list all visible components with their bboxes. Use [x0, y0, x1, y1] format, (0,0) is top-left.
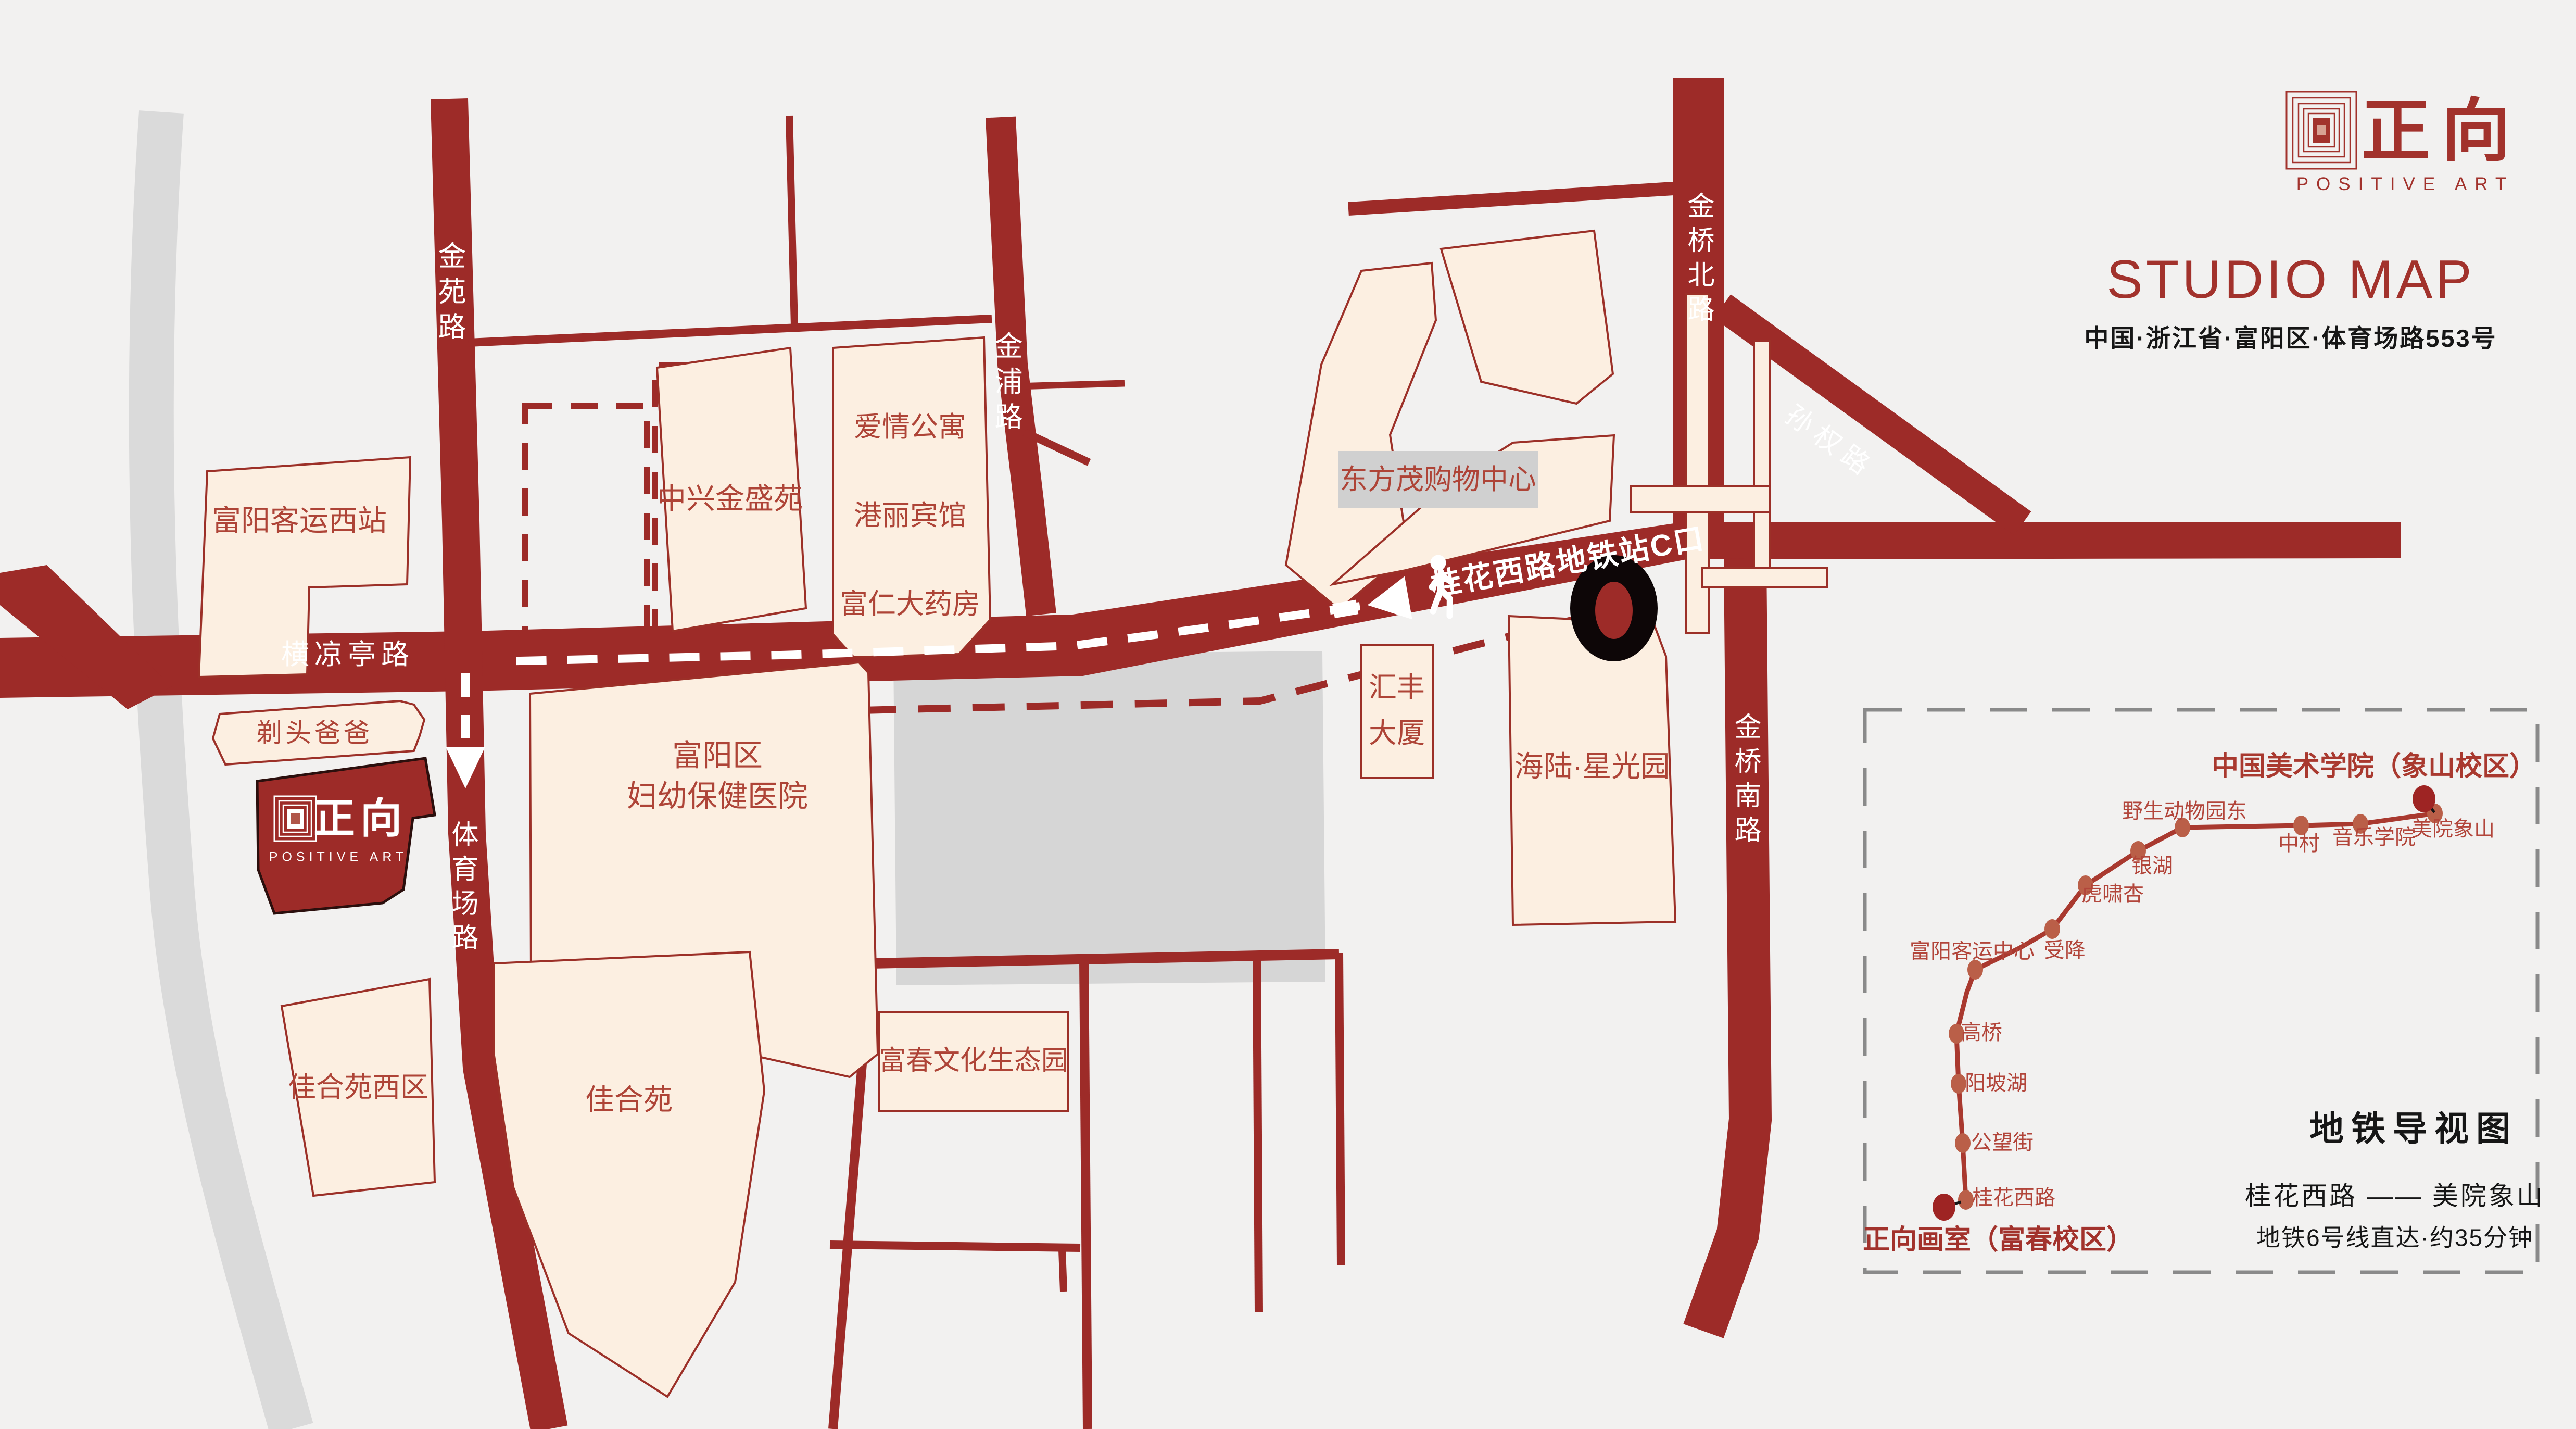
road-jinqiao-south [1703, 558, 1750, 1331]
map-canvas [0, 0, 2576, 1429]
metro-station-yinhu: 银湖 [2131, 854, 2173, 878]
metro-station-yesheng-dongwuyuan: 野生动物园东 [2122, 799, 2247, 823]
building-dongfangmao-north [1441, 231, 1613, 404]
road-label-jinyuan: 金苑路 [435, 241, 463, 347]
label-gangli-hotel: 港丽宾馆 [854, 499, 966, 532]
metro-station-fuyang-keyun: 富阳客运中心 [1910, 939, 2035, 963]
metro-studio-terminal: 正向画室（富春校区） [1863, 1225, 2133, 1256]
label-haircut-dad: 剃头爸爸 [256, 718, 373, 748]
road-park-south [830, 1245, 1080, 1248]
overpass-upper-bar [1631, 486, 1770, 512]
dashed-parcel-1 [525, 406, 647, 636]
overpass-lower-bar [1702, 568, 1827, 587]
road-mid-vertical-3 [1339, 953, 1341, 1265]
label-hsbc-line2: 大厦 [1369, 717, 1425, 749]
metro-station-guihuaxilu: 桂花西路 [1972, 1186, 2055, 1210]
label-bus-station-west: 富阳客运西站 [212, 504, 387, 537]
label-hsbc-line1: 汇丰 [1369, 671, 1425, 704]
label-hailu: 海陆·星光园 [1514, 750, 1670, 783]
road-mid-vertical-2 [1257, 958, 1259, 1312]
label-hospital-line1: 富阳区 [672, 739, 763, 774]
brand-logo-en: POSITIVE ART [2296, 174, 2515, 195]
road-jinpu-cross [1016, 383, 1125, 386]
brand-logo-icon [2287, 92, 2356, 169]
metro-campus-terminal: 中国美术学院（象山校区） [2212, 751, 2536, 783]
metro-station-meiyuan-xiangshan: 美院象山 [2411, 817, 2495, 841]
road-label-tiyuchang: 体育场路 [449, 820, 476, 958]
label-jiaheyuan: 佳合苑 [585, 1083, 673, 1117]
metro-station-zhongcun: 中村 [2278, 832, 2320, 856]
studio-marker-cn: 正向 [313, 795, 407, 843]
page-title: STUDIO MAP [2106, 249, 2474, 311]
terminal-dot-studio [1933, 1194, 1955, 1221]
road-park-stub [1062, 1250, 1064, 1292]
metro-panel-title: 地铁导视图 [2309, 1109, 2518, 1149]
label-fuchun-park: 富春文化生态园 [879, 1046, 1068, 1077]
label-jiaheyuan-west: 佳合苑西区 [288, 1071, 428, 1104]
road-label-jinqiao-north: 金桥北路 [1685, 192, 1712, 329]
studio-marker-en: POSITIVE ART [269, 850, 408, 865]
metro-exit-marker-center [1595, 582, 1633, 639]
label-furen-pharmacy: 富仁大药房 [840, 588, 980, 620]
metro-station-shouxiang: 受降 [2044, 938, 2086, 962]
label-love-apartment: 爱情公寓 [854, 411, 966, 443]
label-dongfangmao: 东方茂购物中心 [1340, 463, 1536, 496]
river-band [151, 112, 292, 1429]
brand-logo-cn: 正向 [2362, 92, 2522, 171]
metro-station-huxiaoxing: 虎啸杏 [2081, 882, 2144, 906]
metro-station-yangpohu: 阳坡湖 [1965, 1071, 2027, 1095]
overpass-east-prong [1754, 341, 1770, 573]
studio-address: 中国·浙江省·富阳区·体育场路553号 [2084, 324, 2497, 353]
road-label-jinpu: 金浦路 [992, 331, 1020, 437]
road-top-thin [469, 319, 992, 343]
label-hospital-line2: 妇幼保健医院 [627, 780, 808, 814]
studio-map-poster: 正向 POSITIVE ART STUDIO MAP 中国·浙江省·富阳区·体育… [0, 0, 2576, 1429]
road-mid-vertical-1 [1084, 961, 1088, 1429]
metro-station-gaoqiao: 高桥 [1961, 1021, 2002, 1045]
road-label-hengliangting: 横凉亭路 [281, 638, 414, 671]
label-zhongxing: 中兴金盛苑 [657, 482, 803, 516]
building-hsbc [1361, 645, 1433, 778]
metro-station-gongwangjie: 公望街 [1971, 1131, 2034, 1155]
road-block-divider [789, 116, 794, 326]
road-label-jinqiao-south: 金桥南路 [1732, 712, 1759, 850]
metro-note: 地铁6号线直达·约35分钟 [2256, 1224, 2533, 1252]
road-top-right [1348, 189, 1673, 209]
terminal-dot-campus [2413, 785, 2435, 812]
metro-route-line: 桂花西路 —— 美院象山 [2245, 1181, 2545, 1211]
metro-station-yinyue-xueyuan: 音乐学院 [2332, 825, 2416, 849]
